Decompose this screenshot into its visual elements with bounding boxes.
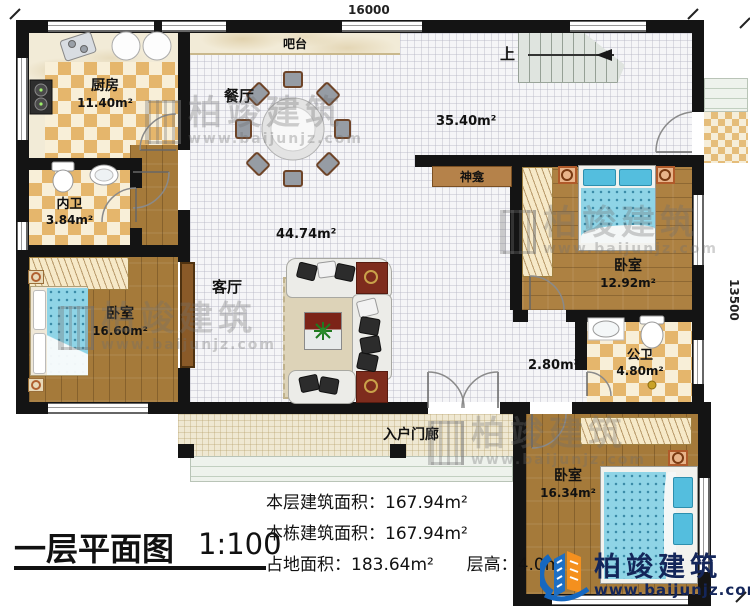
wall-bedroomright-bottom-a: [513, 310, 528, 322]
living-label: 客厅: [212, 276, 242, 297]
porch-column: [178, 444, 194, 458]
stat-value: 167.94m²: [385, 524, 468, 544]
pillow: [33, 290, 46, 330]
wall-bath1-top: [29, 158, 130, 170]
bed-sheet: [581, 225, 655, 243]
inner-bath-label: 内卫 3.84m²: [32, 197, 107, 228]
stairs-up-label: 上: [500, 43, 515, 64]
wall-bath1-bottom: [29, 245, 178, 257]
pass-area-label: 2.80m²: [528, 358, 579, 373]
nightstand: [668, 450, 688, 466]
window-left-kitchen: [17, 58, 28, 140]
dimension-top: 16000: [348, 3, 390, 17]
bedroom-left-door: [180, 262, 195, 368]
window-top-hall: [342, 21, 422, 32]
side-porch-floor: [704, 112, 748, 163]
bedroom-left-label: 卧室 16.60m²: [70, 306, 170, 339]
stat-line-2: 本栋建筑面积：167.94m²: [266, 519, 561, 550]
living-area-label: 44.74m²: [276, 227, 336, 242]
dimension-right: 13500: [727, 279, 741, 325]
window-bottom-bedroomleft: [48, 403, 148, 414]
window-right-bath: [693, 340, 704, 384]
nightstand: [28, 378, 44, 392]
stat-label: 本层建筑面积：: [266, 493, 385, 513]
window-top-kitchen: [48, 21, 154, 32]
pillow: [33, 333, 46, 374]
sofa-bottom: [288, 370, 356, 404]
company-logo-icon: [540, 545, 592, 603]
wall-bath1-right-a: [130, 158, 142, 188]
coffee-table: [304, 312, 342, 350]
side-door-opening: [692, 112, 704, 155]
wardrobe-bedroom-bottom: [580, 417, 692, 445]
dining-label: 餐厅: [224, 85, 254, 106]
stat-value: 183.64m²: [351, 555, 434, 575]
area-stats: 本层建筑面积：167.94m² 本栋建筑面积：167.94m² 占地面积：183…: [266, 488, 561, 581]
porch-label: 入户门廊: [383, 424, 439, 444]
stat-label: 层高：: [467, 555, 518, 575]
pillow: [673, 513, 693, 545]
stat-value: 167.94m²: [385, 493, 468, 513]
hall-area-label: 35.40m²: [436, 114, 496, 129]
bed-right: [578, 165, 656, 251]
wall-corridor-right: [178, 210, 190, 262]
plan-scale: 1:100: [198, 527, 282, 561]
nightstand: [656, 166, 675, 184]
stat-line-1: 本层建筑面积：167.94m²: [266, 488, 561, 519]
company-logo-url: www.baijunjz.com: [594, 581, 750, 599]
sofa-right: [352, 294, 392, 380]
porch-column: [390, 444, 406, 458]
bar-counter: 吧台: [190, 33, 400, 55]
kitchen-label: 厨房 11.40m²: [55, 78, 155, 111]
side-porch-steps: [704, 78, 748, 112]
wardrobe-bedroom-right: [522, 167, 553, 277]
wall-bottom-c: [572, 402, 700, 414]
stat-line-3: 占地面积：183.64m² 层高：4.0m: [266, 550, 561, 581]
window-top-stairs: [570, 21, 646, 32]
window-right-bedroom: [693, 195, 704, 265]
pillow: [583, 169, 616, 186]
bar-label: 吧台: [283, 35, 307, 52]
nightstand: [28, 270, 44, 284]
floor-plan-page: 吧台 神龛: [0, 0, 750, 614]
side-table: [356, 371, 388, 403]
porch-steps: [190, 456, 513, 482]
bedroom-right-label: 卧室 12.92m²: [596, 258, 660, 291]
side-table: [356, 262, 388, 294]
stat-label: 本栋建筑面积：: [266, 524, 385, 544]
company-logo-name: 柏竣建筑: [594, 545, 722, 584]
window-left-bath: [17, 222, 28, 250]
wall-kitchen-right: [178, 33, 190, 150]
shrine-label: 神龛: [460, 168, 484, 185]
wall-bedroomleft-right: [178, 368, 190, 402]
title-underline: [14, 566, 266, 570]
wall-bedroomright-bottom-b: [566, 310, 692, 322]
porch-floor: [178, 414, 513, 456]
shrine-cabinet: 神龛: [432, 166, 512, 187]
pillow: [673, 477, 693, 508]
public-bath-label: 公卫 4.80m²: [602, 348, 678, 379]
window-top-bar: [162, 21, 226, 32]
mattress: [581, 188, 655, 243]
nightstand: [558, 166, 577, 184]
plan-title: 一层平面图: [14, 524, 174, 570]
pillow: [619, 169, 652, 186]
